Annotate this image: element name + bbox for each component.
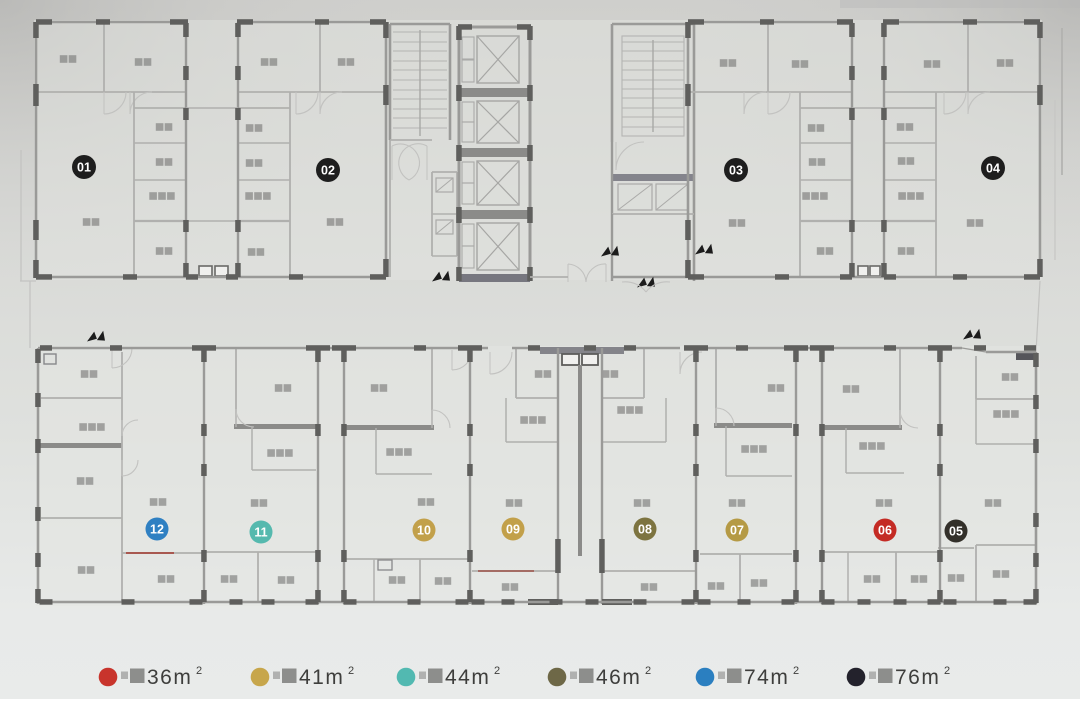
svg-text:01: 01 xyxy=(77,160,91,174)
svg-text:12: 12 xyxy=(150,522,164,536)
svg-text:10: 10 xyxy=(417,523,431,537)
svg-text:09: 09 xyxy=(506,522,520,536)
svg-text:36m: 36m xyxy=(147,666,192,689)
svg-text:11: 11 xyxy=(254,525,267,539)
svg-text:04: 04 xyxy=(986,161,1000,175)
svg-text:03: 03 xyxy=(729,163,743,177)
svg-text:2: 2 xyxy=(645,665,651,677)
svg-text:07: 07 xyxy=(730,523,744,537)
svg-text:2: 2 xyxy=(196,665,202,677)
svg-text:44m: 44m xyxy=(445,666,490,689)
svg-text:41m: 41m xyxy=(299,666,344,689)
svg-text:2: 2 xyxy=(793,665,799,677)
svg-text:02: 02 xyxy=(321,163,335,177)
svg-text:2: 2 xyxy=(348,665,354,677)
svg-text:2: 2 xyxy=(944,665,950,677)
svg-text:74m: 74m xyxy=(744,666,789,689)
svg-text:06: 06 xyxy=(878,523,892,537)
svg-text:46m: 46m xyxy=(596,666,641,689)
svg-text:05: 05 xyxy=(949,524,963,538)
svg-text:08: 08 xyxy=(638,522,652,536)
svg-text:2: 2 xyxy=(494,665,500,677)
svg-text:76m: 76m xyxy=(895,666,940,689)
